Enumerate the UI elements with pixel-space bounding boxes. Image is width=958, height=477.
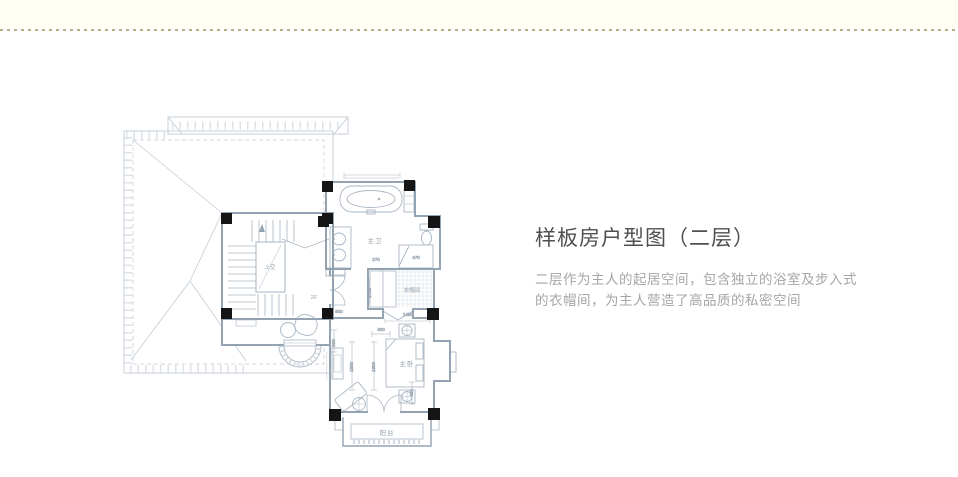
dim-bed-gap: 400 [377,327,385,332]
label-master-bath: 主卫 [368,236,383,245]
dim-bed-b: 1600 [371,361,376,372]
bay-window-walls [434,341,450,381]
dim-shower: 470 [412,255,420,260]
dim-bath-door: 270 [372,257,380,262]
dim-closet-depth: 1700 [367,287,372,298]
dim-bed-a: 1500 [349,361,354,372]
label-balcony: 阳台 [380,428,395,437]
dim-closet-door: 1450 [403,312,414,317]
label-closet: 衣帽间 [404,286,421,294]
label-floor-tag: 2F [311,295,318,301]
label-void: 上空 [264,263,276,271]
description-line-2: 的衣帽间，为主人营造了高品质的私密空间 [535,293,801,308]
page-title: 样板房户型图（二层） [535,222,875,252]
label-master-bedroom: 主卧 [400,359,415,368]
dim-hall-opening: 500 [335,309,343,314]
page-description: 二层作为主人的起居空间，包含独立的浴室及步入式 的衣帽间，为主人营造了高品质的私… [535,269,875,311]
dim-wall-offset: 500 [331,339,336,347]
page: 主卫 衣帽间 主卧 阳台 上空 2F 270 1700 470 1450 400… [0,0,958,477]
text-panel: 样板房户型图（二层） 二层作为主人的起居空间，包含独立的浴室及步入式 的衣帽间，… [535,222,875,311]
description-line-1: 二层作为主人的起居空间，包含独立的浴室及步入式 [535,272,857,287]
dim-nightstand: 450 [409,389,414,397]
